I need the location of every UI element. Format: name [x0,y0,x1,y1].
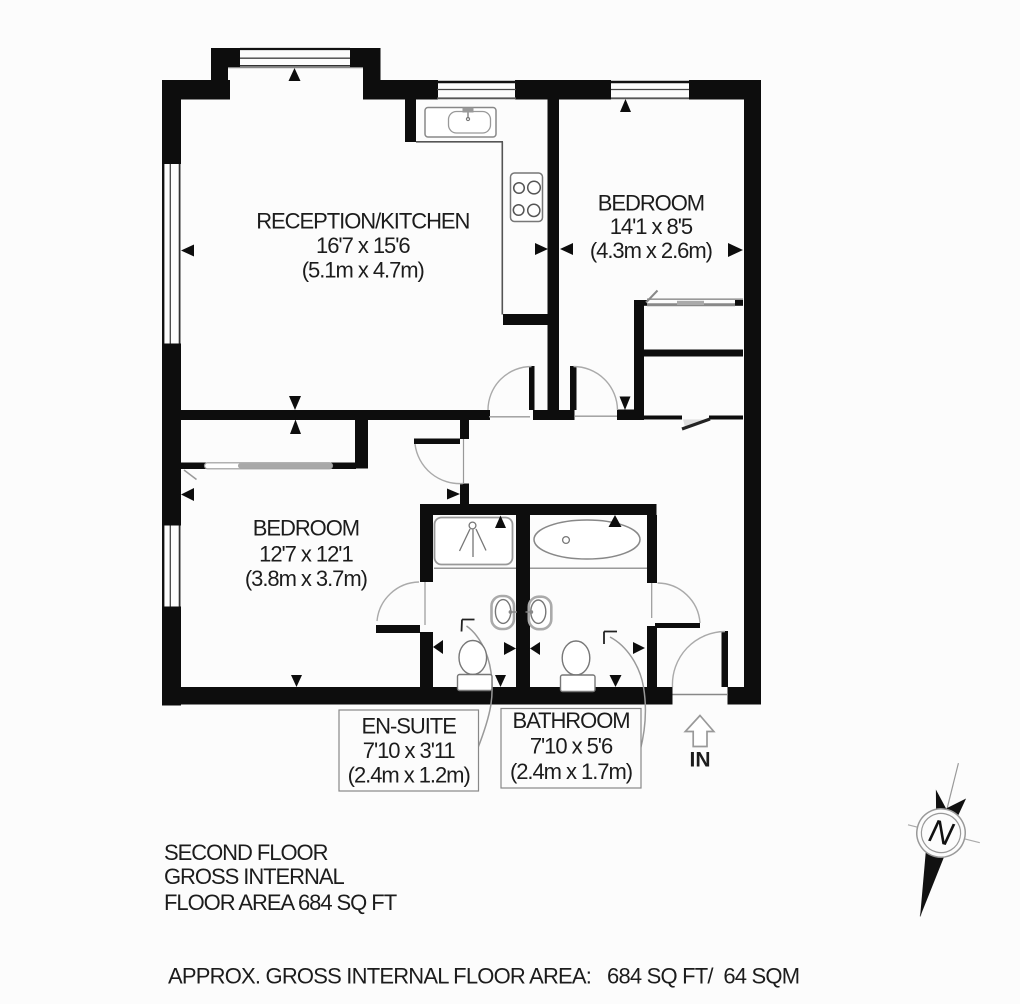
svg-text:GROSS INTERNAL: GROSS INTERNAL [164,864,344,889]
svg-text:SECOND FLOOR: SECOND FLOOR [164,840,328,865]
svg-text:(3.8m x 3.7m): (3.8m x 3.7m) [245,566,367,591]
svg-text:FLOOR AREA 684 SQ FT: FLOOR AREA 684 SQ FT [164,890,397,915]
svg-text:(2.4m x 1.7m): (2.4m x 1.7m) [510,759,632,784]
svg-text:BEDROOM: BEDROOM [598,190,704,215]
svg-text:16'7 x 15'6: 16'7 x 15'6 [316,233,410,258]
svg-text:EN-SUITE: EN-SUITE [362,714,457,739]
svg-text:14'1 x 8'5: 14'1 x 8'5 [610,214,693,239]
svg-text:RECEPTION/KITCHEN: RECEPTION/KITCHEN [256,209,469,234]
svg-text:APPROX. GROSS INTERNAL FLOOR A: APPROX. GROSS INTERNAL FLOOR AREA: 684 S… [168,964,799,989]
svg-text:12'7 x 12'1: 12'7 x 12'1 [259,542,353,567]
svg-text:(2.4m x 1.2m): (2.4m x 1.2m) [348,763,470,788]
svg-text:7'10 x 3'11: 7'10 x 3'11 [363,738,456,763]
svg-text:BEDROOM: BEDROOM [253,516,359,541]
svg-text:7'10 x 5'6: 7'10 x 5'6 [530,734,613,759]
svg-text:(5.1m x 4.7m): (5.1m x 4.7m) [302,258,424,283]
svg-text:IN: IN [690,749,711,772]
svg-text:BATHROOM: BATHROOM [512,708,629,733]
svg-text:(4.3m x 2.6m): (4.3m x 2.6m) [590,238,712,263]
